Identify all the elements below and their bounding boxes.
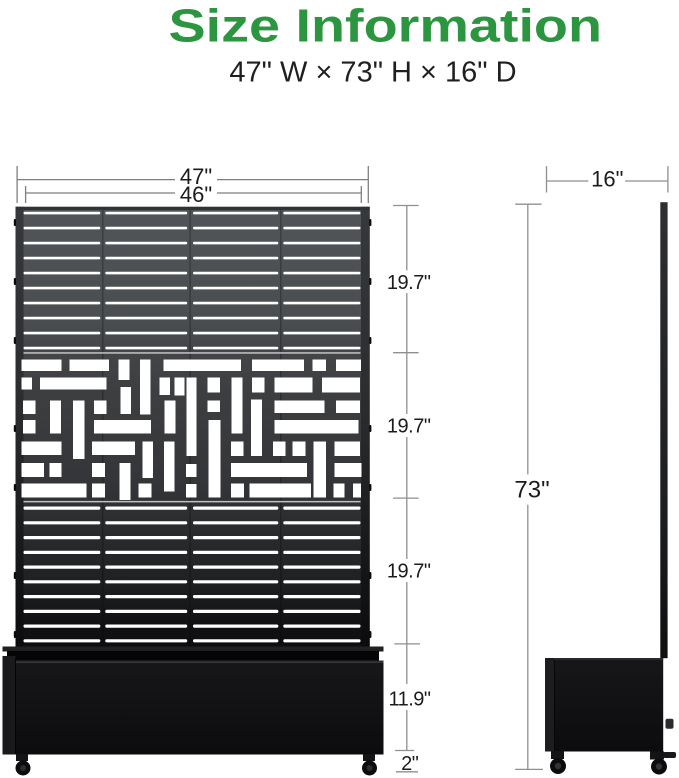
svg-text:16": 16"	[591, 167, 623, 192]
svg-text:2": 2"	[401, 753, 419, 775]
svg-text:46": 46"	[180, 182, 212, 207]
svg-text:19.7": 19.7"	[387, 272, 431, 294]
svg-text:19.7": 19.7"	[387, 561, 431, 583]
svg-text:19.7": 19.7"	[387, 416, 431, 438]
svg-text:Size Information: Size Information	[169, 0, 603, 51]
svg-text:47" W × 73" H × 16" D: 47" W × 73" H × 16" D	[229, 56, 516, 88]
svg-text:73": 73"	[514, 477, 549, 504]
svg-text:11.9": 11.9"	[388, 689, 430, 711]
